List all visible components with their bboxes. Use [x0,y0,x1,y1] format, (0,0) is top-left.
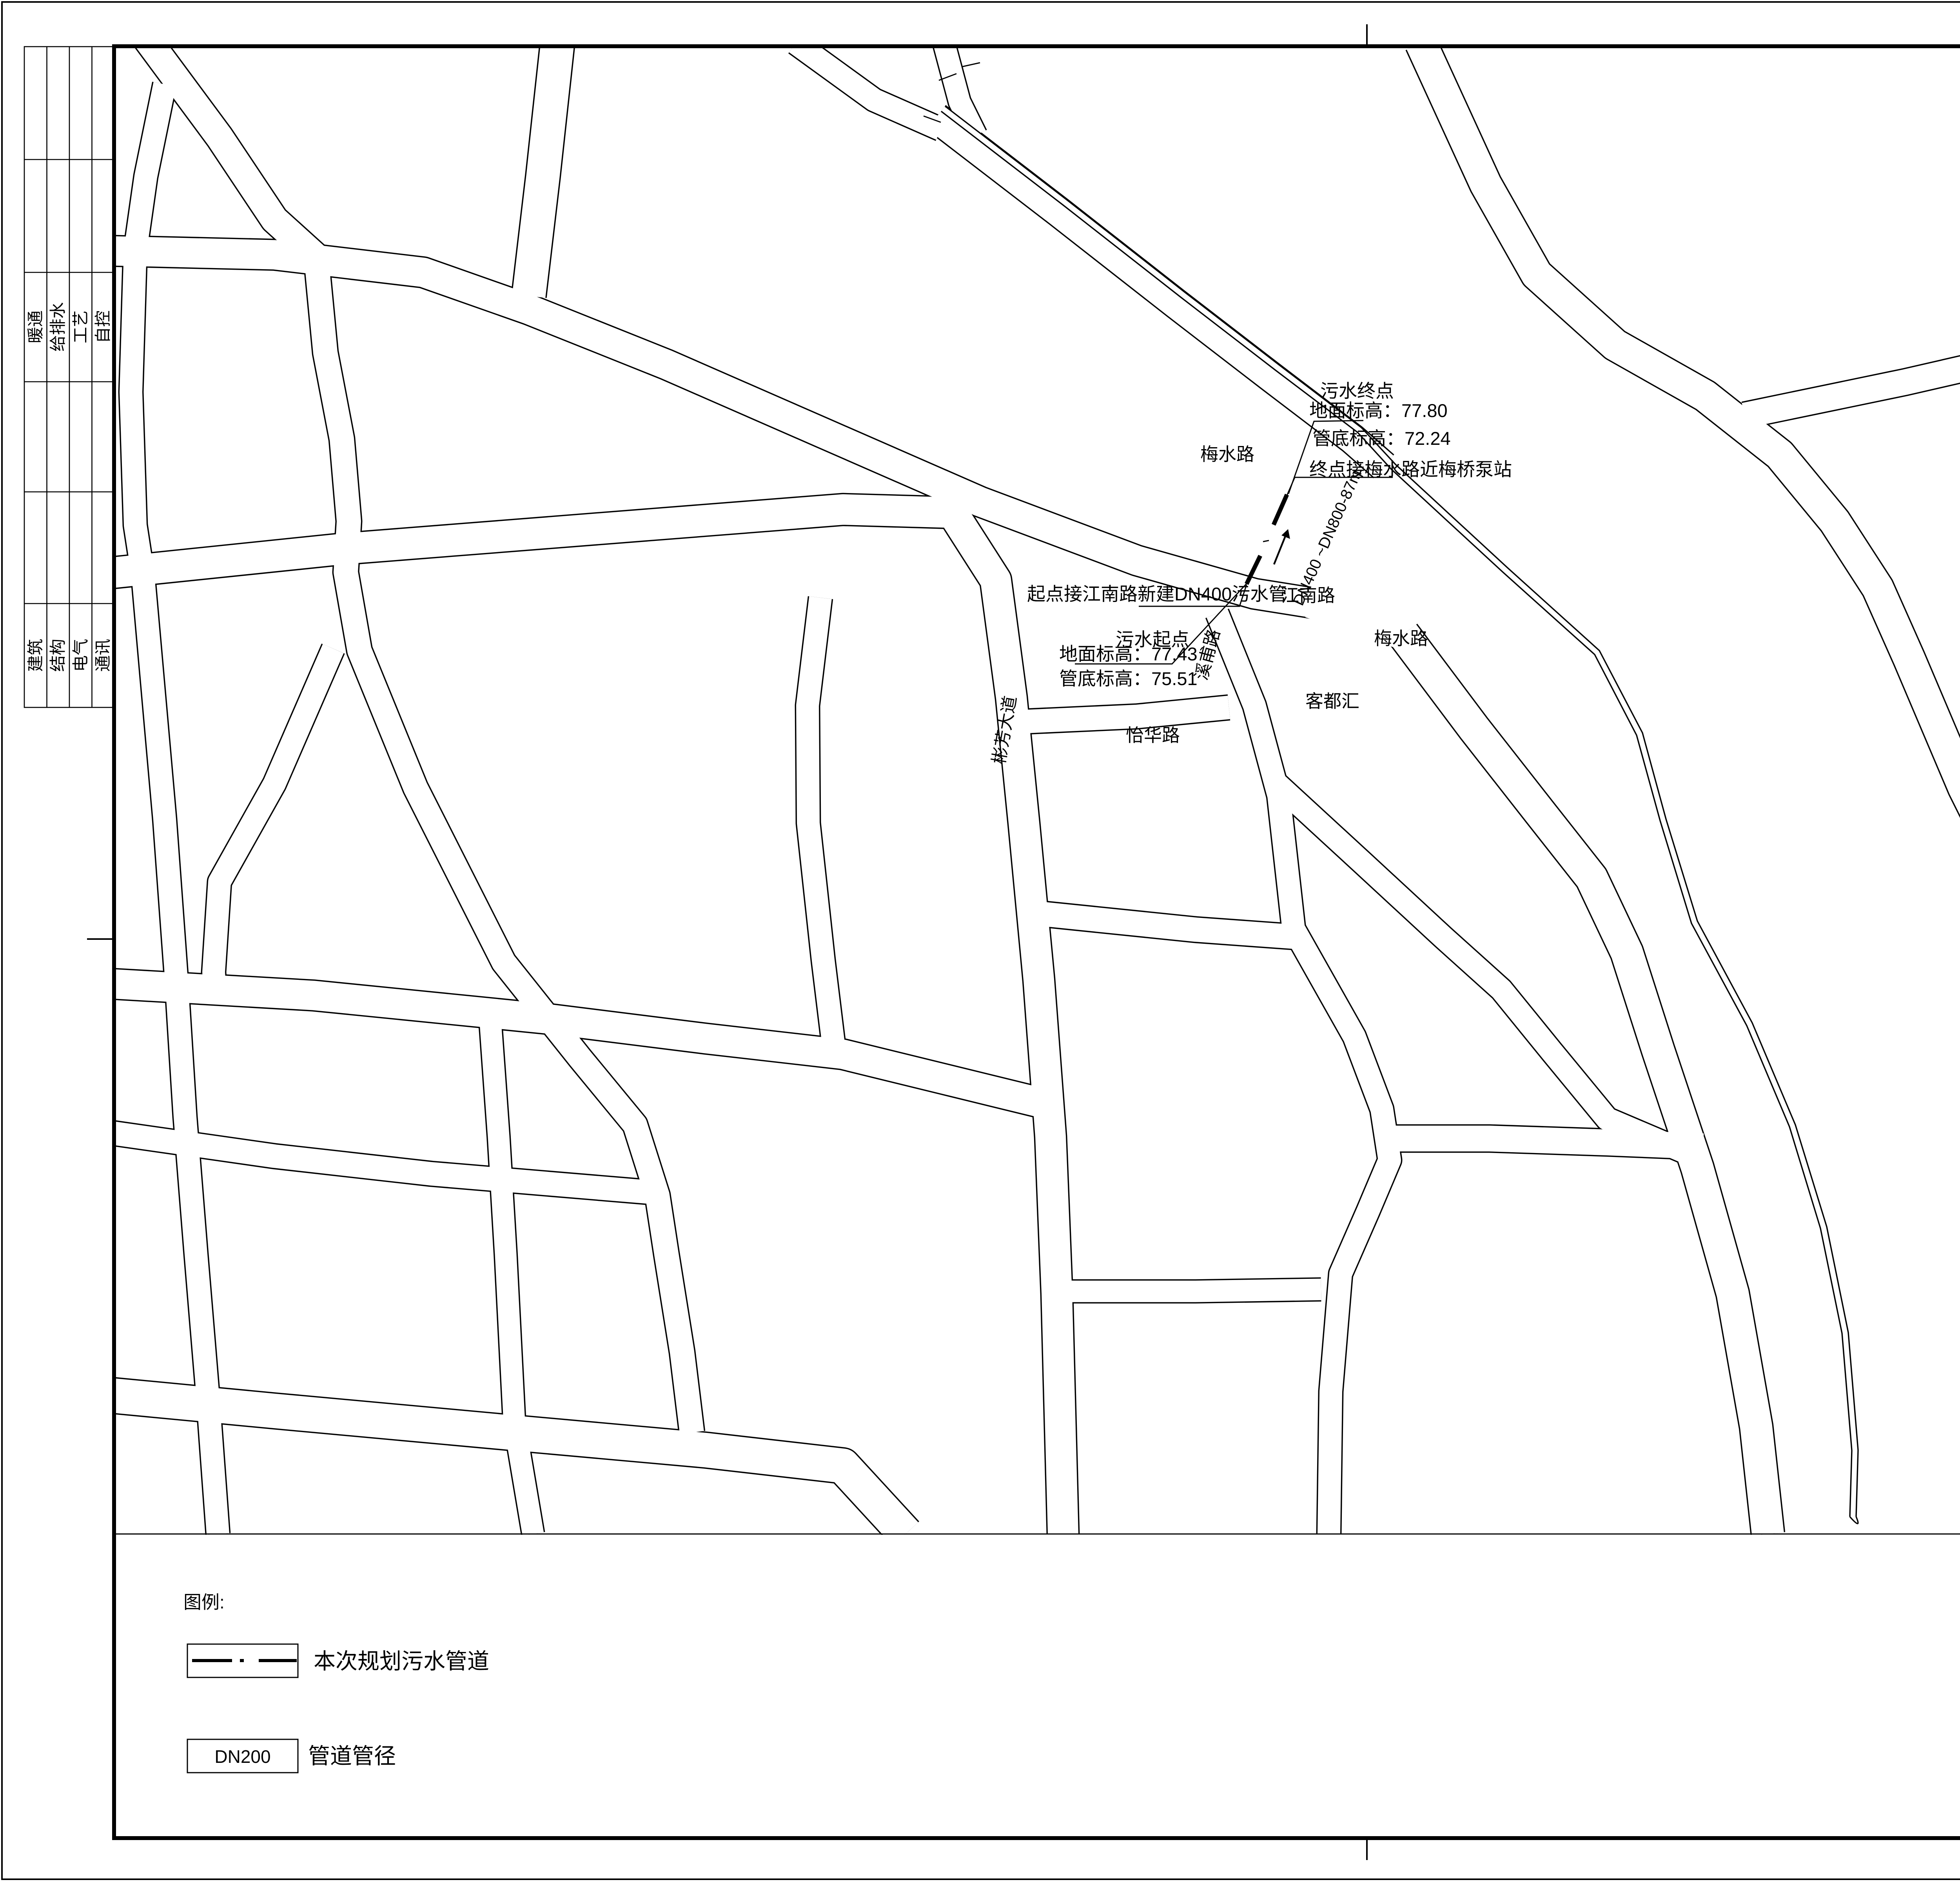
svg-text:管底标高：75.51: 管底标高：75.51 [1059,668,1198,689]
svg-text:电气: 电气 [71,639,90,672]
svg-text:管底标高：72.24: 管底标高：72.24 [1312,428,1451,449]
svg-text:给排水: 给排水 [49,302,67,352]
svg-text:污水终点: 污水终点 [1320,381,1394,401]
svg-text:暖通: 暖通 [26,310,45,343]
svg-text:自控: 自控 [94,310,112,343]
svg-text:工艺: 工艺 [71,310,90,343]
svg-text:梅水路: 梅水路 [1374,628,1428,649]
svg-text:客都汇: 客都汇 [1305,691,1359,711]
svg-text:通讯: 通讯 [94,639,112,672]
svg-text:地面标高：77.80: 地面标高：77.80 [1309,400,1448,421]
svg-text:建筑: 建筑 [26,639,45,672]
svg-text:DN200: DN200 [214,1746,270,1767]
svg-text:梅水路: 梅水路 [1200,444,1254,464]
svg-text:起点接江南路新建DN400污水管: 起点接江南路新建DN400污水管 [1027,584,1287,604]
svg-text:江南路: 江南路 [1281,585,1335,606]
svg-text:本次规划污水管道: 本次规划污水管道 [314,1649,489,1673]
svg-text:图例:: 图例: [183,1592,225,1612]
svg-text:终点接梅水路近梅桥泵站: 终点接梅水路近梅桥泵站 [1309,459,1512,480]
svg-text:结构: 结构 [49,639,67,672]
svg-text:地面标高：77.43: 地面标高：77.43 [1059,644,1198,664]
svg-text:怡华路: 怡华路 [1126,725,1180,745]
svg-text:管道管径: 管道管径 [308,1744,396,1768]
